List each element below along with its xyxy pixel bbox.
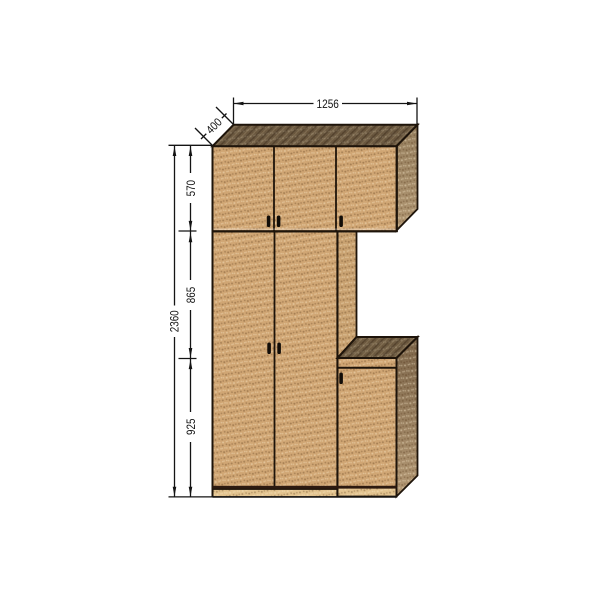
svg-text:570: 570 <box>185 180 198 196</box>
svg-text:1256: 1256 <box>317 98 339 111</box>
svg-text:2360: 2360 <box>169 310 182 332</box>
svg-text:925: 925 <box>185 419 198 435</box>
svg-text:865: 865 <box>185 287 198 303</box>
